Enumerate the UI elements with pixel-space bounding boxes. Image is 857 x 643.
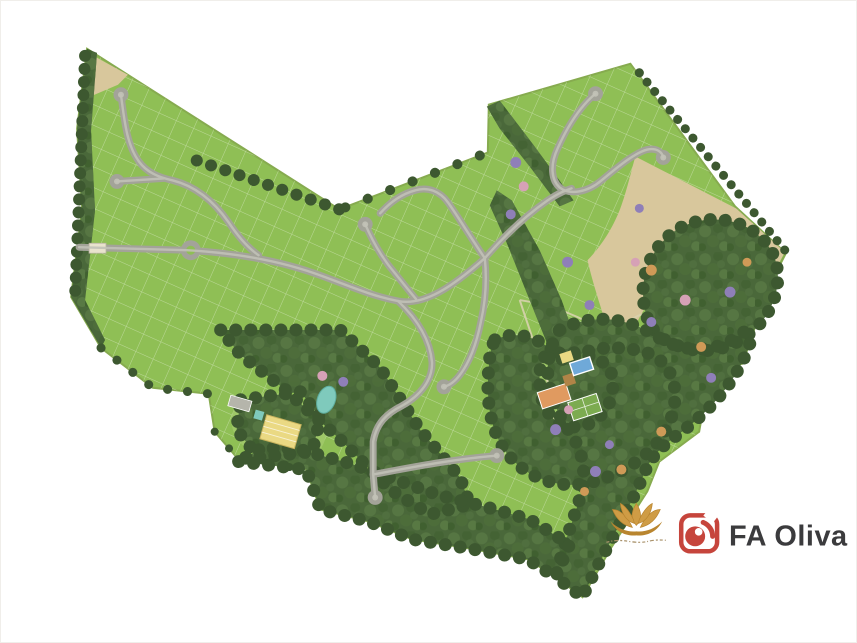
fa-oliva-logo: FA Oliva <box>681 509 848 553</box>
site-plan-svg: FA Oliva <box>1 1 856 642</box>
site-plan-page: FA Oliva <box>0 0 857 643</box>
fa-oliva-icon <box>681 509 718 552</box>
fa-oliva-wordmark: FA Oliva <box>729 520 848 552</box>
